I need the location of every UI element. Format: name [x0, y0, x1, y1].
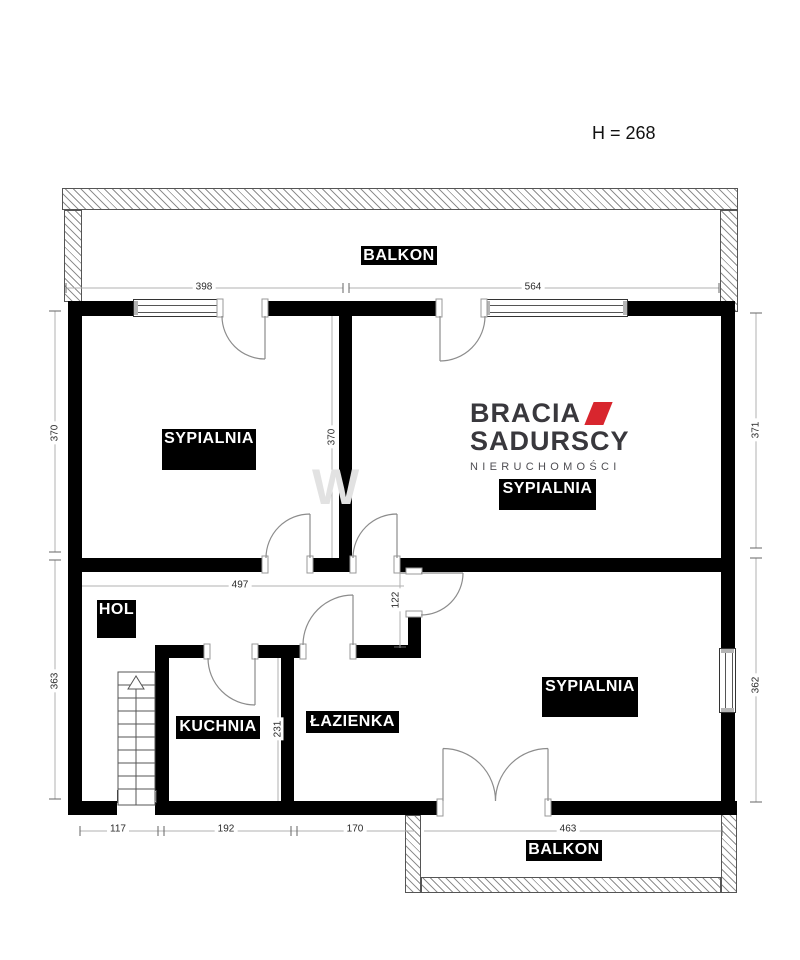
room-label-bedroom-left: SYPIALNIA [162, 429, 256, 470]
room-label-kitchen: KUCHNIA [176, 716, 260, 739]
wall-north-c [628, 301, 735, 316]
door-balcony-bedroom-left [222, 316, 265, 359]
dim-bedroom-bottom-depth: 362 [751, 674, 762, 697]
door-hall-bedroom-bottom [421, 573, 463, 615]
wall-north-b [265, 301, 440, 316]
agency-logo-line1: BRACIA [470, 400, 581, 428]
door-balcony-bedroom-right [440, 316, 485, 361]
window-stairs [117, 790, 157, 803]
wall-kitchen-top-b [255, 645, 303, 658]
window-bedroom-bottom [719, 648, 736, 713]
dim-bottom-seg2: 192 [215, 824, 238, 835]
room-label-hall: HOL [97, 600, 136, 638]
agency-logo-line2: SADURSCY [470, 428, 630, 456]
dim-bottom-seg3: 170 [344, 824, 367, 835]
dim-bedroom-left-depth: 370 [50, 422, 61, 445]
balcony-bottom-wall-south [421, 877, 721, 893]
dim-balcony-top-left: 398 [193, 282, 216, 293]
balcony-top-wall-north [62, 188, 738, 210]
dim-passage-depth: 122 [391, 589, 402, 612]
dim-bedroom-right-depth: 371 [751, 419, 762, 442]
dim-kitchen-depth: 231 [273, 718, 284, 741]
wall-east-lower [721, 713, 735, 803]
room-label-balcony-bottom: BALKON [526, 840, 602, 861]
wall-bedroom-divider [339, 316, 352, 558]
dim-lower-left-depth: 363 [50, 670, 61, 693]
dim-bottom-seg1: 117 [107, 824, 129, 835]
dim-bottom-balcony: 463 [557, 824, 580, 835]
watermark: W [312, 458, 359, 516]
balcony-top-wall-east [720, 210, 738, 312]
wall-mid-b [310, 558, 353, 572]
dim-bedroom-mid-depth: 370 [327, 426, 338, 449]
door-hall-bedroom-right [353, 514, 397, 558]
door-hall-bedroom-left [266, 514, 310, 558]
balcony-bottom-wall-west [405, 815, 421, 893]
room-label-bathroom: ŁAZIENKA [306, 711, 399, 733]
balcony-bottom-wall-east [721, 803, 737, 893]
door-kitchen [208, 658, 255, 705]
stairs [118, 672, 155, 805]
door-bathroom [303, 595, 353, 645]
room-label-bedroom-right: SYPIALNIA [499, 479, 596, 510]
window-bedroom-right [485, 299, 628, 317]
wall-south-a [68, 801, 117, 815]
floor-plan: H = 268 [0, 0, 800, 960]
agency-logo: BRACIA SADURSCY NIERUCHOMOŚCI [470, 400, 630, 473]
door-balcony-bottom-double [443, 749, 548, 802]
wall-mid-c [397, 558, 735, 572]
wall-south-b [157, 801, 443, 815]
room-label-bedroom-bottom: SYPIALNIA [542, 677, 638, 717]
window-bedroom-left [133, 299, 222, 317]
balcony-top-wall-west [64, 210, 82, 302]
wall-east-upper [721, 312, 735, 648]
wall-south-c [548, 801, 737, 815]
room-label-balcony-top: BALKON [361, 246, 437, 265]
plan-linework [0, 0, 800, 960]
dim-hall-width: 497 [229, 580, 252, 591]
ceiling-height-note: H = 268 [592, 123, 656, 144]
wall-kitchen-west [155, 645, 169, 815]
agency-logo-tagline: NIERUCHOMOŚCI [470, 461, 630, 473]
agency-logo-mark-icon [584, 402, 612, 425]
wall-mid-a [68, 558, 266, 572]
wall-kitchen-top-c [353, 645, 421, 658]
dim-balcony-top-right: 564 [522, 282, 545, 293]
stairs-up-arrow [128, 676, 144, 689]
